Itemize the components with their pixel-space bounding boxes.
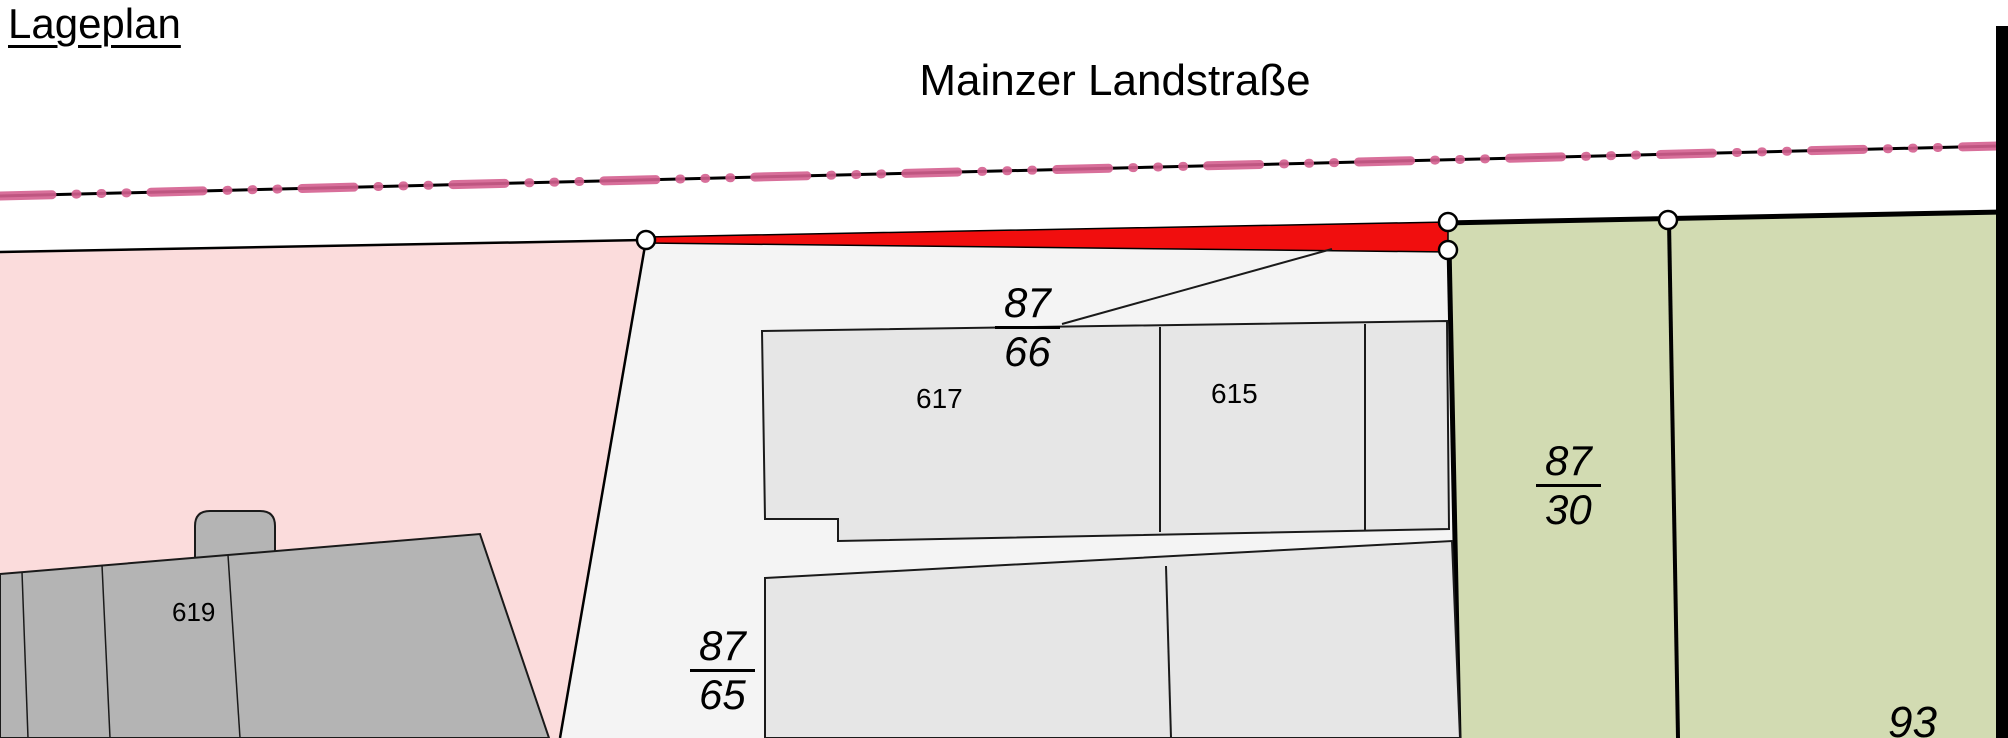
survey-point-icon-right-top xyxy=(1439,213,1457,231)
survey-point-icon-right-bottom xyxy=(1439,241,1457,259)
parcel-label-87-66: 87 66 xyxy=(995,281,1060,374)
building-label-615: 615 xyxy=(1211,378,1258,410)
building-label-617: 617 xyxy=(916,383,963,415)
parcel-label-93: 93 xyxy=(1888,698,1937,738)
parcel-label-87-65-numerator: 87 xyxy=(690,624,755,672)
building-617-615-outline xyxy=(762,321,1449,541)
page-title: Lageplan xyxy=(8,0,181,48)
lageplan-map: Lageplan Mainzer Landstraße 87 66 87 65 … xyxy=(0,0,2008,738)
survey-point-icon-green-divider xyxy=(1659,211,1677,229)
street-name-label: Mainzer Landstraße xyxy=(900,56,1330,106)
survey-point-icon-left xyxy=(637,231,655,249)
parcel-93-area xyxy=(1668,213,2003,738)
building-label-619: 619 xyxy=(172,597,215,628)
parcel-label-87-66-numerator: 87 xyxy=(995,281,1060,329)
parcel-label-87-30-denominator: 30 xyxy=(1536,487,1601,532)
map-frame-right-border xyxy=(1996,26,2008,738)
parcel-label-87-30-numerator: 87 xyxy=(1536,439,1601,487)
parcel-label-87-65: 87 65 xyxy=(690,624,755,717)
parcel-label-87-30: 87 30 xyxy=(1536,439,1601,532)
parcel-label-87-65-denominator: 65 xyxy=(690,672,755,717)
parcel-label-87-66-denominator: 66 xyxy=(995,329,1060,374)
